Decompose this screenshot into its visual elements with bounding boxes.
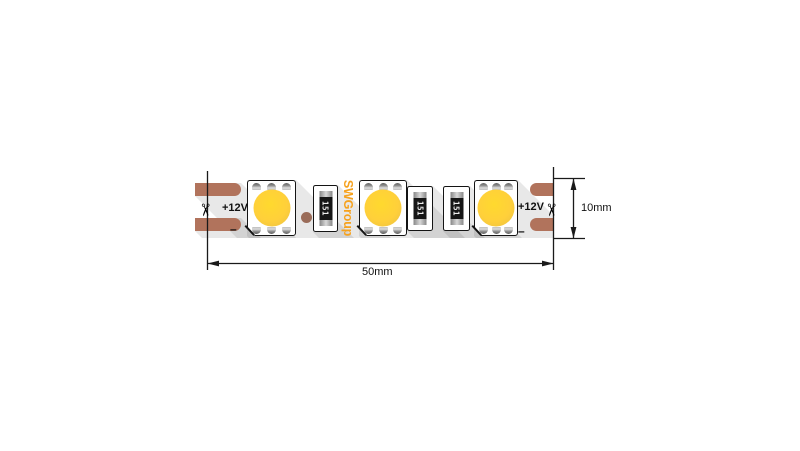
led-strip: 151 151 151 SWGroup +12V – +12V – [195, 178, 553, 238]
led-package [474, 180, 518, 236]
led-module-1 [247, 180, 296, 236]
resistor-3: 151 [443, 186, 470, 231]
led-chip-circle [478, 190, 515, 227]
led-contact [252, 183, 261, 190]
led-contact [282, 227, 291, 234]
led-contact [379, 227, 388, 234]
led-contact [393, 227, 402, 234]
led-contact [479, 183, 488, 190]
led-contact [364, 183, 373, 190]
minus-label-left: – [230, 224, 237, 235]
led-package [247, 180, 296, 236]
voltage-label-left: +12V [222, 203, 248, 214]
led-chip-circle [365, 190, 402, 227]
scissors-icon-left: ✂ [197, 203, 214, 217]
led-strip-diagram: 151 151 151 SWGroup +12V – +12V – [0, 0, 800, 451]
brand-logo: SWGroup [341, 180, 355, 236]
resistor-cap [414, 219, 427, 225]
dimension-width-label: 50mm [362, 266, 393, 278]
dimension-height-label: 10mm [581, 202, 612, 214]
resistor-body: 151 [450, 192, 463, 225]
resistor-code: 151 [416, 201, 425, 216]
resistor-code: 151 [452, 201, 461, 216]
resistor-cap [319, 220, 332, 226]
led-chip-circle [253, 190, 290, 227]
led-contact [267, 227, 276, 234]
led-package [359, 180, 407, 236]
led-contact [492, 227, 501, 234]
led-contact [379, 183, 388, 190]
copper-pad-top-left [195, 183, 241, 196]
led-contacts-top [252, 183, 291, 190]
led-contacts-top [479, 183, 513, 190]
resistor-1: 151 [313, 185, 338, 232]
led-contacts-bottom [252, 227, 291, 234]
copper-pad-bottom-right [530, 218, 553, 231]
resistor-code: 151 [321, 201, 330, 216]
led-contact [504, 183, 513, 190]
led-contacts-top [364, 183, 402, 190]
led-contact [282, 183, 291, 190]
minus-label-right: – [518, 226, 525, 237]
resistor-cap [450, 219, 463, 225]
resistor-2: 151 [407, 186, 433, 231]
voltage-label-right: +12V [518, 202, 544, 213]
led-module-3 [474, 180, 518, 236]
resistor-body: 151 [414, 192, 427, 225]
resistor-body: 151 [319, 191, 332, 226]
led-contact [492, 183, 501, 190]
scissors-icon-right: ✂ [543, 203, 560, 217]
led-contact [393, 183, 402, 190]
led-contacts-bottom [479, 227, 513, 234]
led-contact [267, 183, 276, 190]
led-contacts-bottom [364, 227, 402, 234]
led-module-2 [359, 180, 407, 236]
copper-pad-top-right [530, 183, 553, 196]
led-contact [504, 227, 513, 234]
